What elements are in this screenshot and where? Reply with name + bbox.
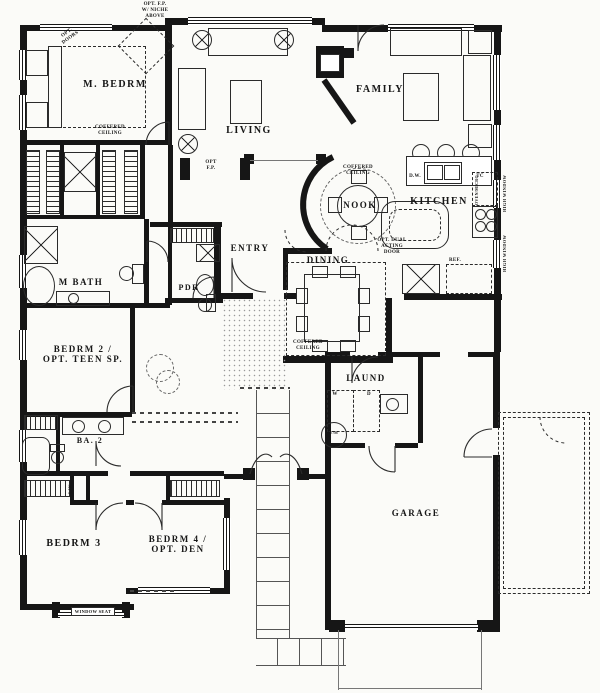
room-label-bath2: BA. 2 bbox=[70, 436, 110, 445]
wall bbox=[162, 500, 228, 505]
closet-rod bbox=[26, 150, 40, 214]
door-swing bbox=[96, 503, 123, 530]
room-label-laundry: LAUND bbox=[338, 373, 394, 383]
wall bbox=[297, 468, 309, 480]
note-coffered-dining: COFFERED CEILING bbox=[286, 340, 330, 352]
coffee-table bbox=[230, 80, 262, 124]
sink-basin bbox=[386, 398, 399, 411]
label-high-window-1: HIGH WINDOW bbox=[502, 176, 507, 212]
door-swing bbox=[369, 446, 395, 472]
wall bbox=[468, 352, 494, 357]
ceiling-fan-icon bbox=[274, 30, 294, 50]
window bbox=[493, 240, 501, 268]
closet-rod bbox=[24, 415, 58, 430]
closet-rod bbox=[102, 150, 116, 214]
closet-rod bbox=[170, 480, 220, 497]
sink-basin bbox=[98, 420, 111, 433]
wall bbox=[20, 555, 27, 610]
walkway-pavers bbox=[256, 638, 346, 666]
wall bbox=[283, 356, 393, 363]
chair bbox=[340, 266, 356, 278]
nightstand bbox=[26, 50, 48, 76]
room-label-garage: GARAGE bbox=[378, 508, 454, 518]
room-label-bedroom4: BEDRM 4 / OPT. DEN bbox=[138, 534, 218, 554]
room-label-living: LIVING bbox=[214, 125, 284, 136]
wall bbox=[494, 268, 501, 352]
courtyard-walkway bbox=[256, 390, 290, 638]
wall bbox=[150, 222, 222, 227]
closet-rod bbox=[24, 480, 70, 497]
wall bbox=[395, 443, 418, 448]
toilet-tank bbox=[132, 264, 144, 284]
floor-plan: M. BEDRM LIVING FAMILY NOOK KITCHEN ENTR… bbox=[0, 0, 600, 693]
window bbox=[345, 624, 478, 630]
wall bbox=[243, 468, 255, 480]
bath2-tub bbox=[22, 437, 50, 475]
burner bbox=[486, 221, 497, 232]
window bbox=[188, 17, 312, 25]
room-label-bedroom2: BEDRM 2 / OPT. TEEN SP. bbox=[35, 344, 131, 364]
wall bbox=[20, 80, 27, 95]
closet-shelf bbox=[196, 244, 220, 262]
wall bbox=[306, 474, 326, 479]
label-window-seat: WINDOW SEAT bbox=[71, 607, 115, 616]
wall bbox=[214, 222, 221, 302]
wall bbox=[318, 248, 332, 254]
driveway-edge bbox=[338, 688, 482, 689]
yard-fence-dashed bbox=[132, 412, 238, 414]
label-refrigerator: REF. bbox=[446, 258, 464, 264]
room-label-dining: DINING bbox=[300, 255, 356, 265]
ceiling-fan-icon bbox=[178, 134, 198, 154]
burner bbox=[486, 209, 497, 220]
wall bbox=[329, 620, 345, 632]
wall bbox=[378, 352, 440, 357]
entry-porch bbox=[222, 298, 286, 390]
wall bbox=[130, 471, 224, 476]
note-opt-fireplace-niche: OPT. F.P. W/ NICHE ABOVE bbox=[137, 2, 173, 19]
sofa bbox=[463, 55, 491, 121]
burner bbox=[475, 221, 486, 232]
closet-rod bbox=[46, 150, 60, 214]
loveseat bbox=[178, 68, 206, 130]
wall bbox=[418, 357, 423, 443]
room-label-powder: PDR bbox=[172, 283, 206, 292]
wall bbox=[477, 620, 493, 632]
room-label-bedroom3: BEDRM 3 bbox=[36, 538, 112, 549]
label-oven-micro: OVEN/MICRO bbox=[475, 175, 480, 205]
door-swing bbox=[147, 241, 168, 262]
label-dishwasher: D.W. bbox=[407, 174, 423, 180]
window bbox=[19, 330, 27, 360]
note-coffered-nook: COFFERED CEILING bbox=[336, 165, 380, 177]
closet-rod bbox=[124, 150, 138, 214]
room-label-family: FAMILY bbox=[348, 84, 412, 95]
sink-basin bbox=[72, 420, 85, 433]
pantry-cabinet bbox=[402, 264, 440, 294]
room-label-master-bedroom: M. BEDRM bbox=[70, 79, 160, 90]
window bbox=[493, 55, 501, 110]
end-table bbox=[468, 30, 492, 54]
bed-headboard bbox=[48, 46, 62, 128]
room-label-entry: ENTRY bbox=[226, 243, 274, 253]
patio-edge-dashed bbox=[240, 387, 290, 389]
wall bbox=[316, 154, 326, 164]
label-dryer: D bbox=[364, 392, 374, 398]
window bbox=[493, 125, 501, 160]
cased-opening bbox=[250, 160, 318, 161]
opt-storage-inner bbox=[503, 417, 585, 589]
door-swing bbox=[135, 503, 162, 530]
entry-closet-rod bbox=[170, 228, 214, 243]
refrigerator-box bbox=[446, 264, 492, 294]
wall bbox=[140, 145, 145, 219]
chair bbox=[358, 316, 370, 332]
wall bbox=[342, 48, 354, 58]
room-label-nook: NOOK bbox=[334, 200, 386, 210]
wall bbox=[180, 158, 190, 180]
wall bbox=[494, 25, 501, 55]
wall bbox=[494, 110, 501, 125]
label-linen: LIN bbox=[69, 477, 75, 501]
chair bbox=[296, 288, 308, 304]
burner bbox=[475, 209, 486, 220]
chair bbox=[351, 226, 367, 240]
note-opt-dual-acting-door: OPT. DUAL ACTING DOOR bbox=[372, 238, 412, 255]
window bbox=[19, 520, 27, 555]
shower bbox=[24, 226, 58, 264]
sofa bbox=[390, 28, 462, 56]
sink-basin bbox=[427, 165, 443, 180]
chair bbox=[340, 340, 356, 352]
chair bbox=[312, 266, 328, 278]
yard-fence-dashed bbox=[132, 421, 238, 423]
wall bbox=[86, 475, 90, 502]
window bbox=[223, 518, 231, 570]
firebox bbox=[320, 54, 340, 72]
wall bbox=[126, 500, 134, 505]
ceiling-fan-icon bbox=[192, 30, 212, 50]
bath-vanity bbox=[56, 291, 110, 306]
chair bbox=[296, 316, 308, 332]
toilet-tank bbox=[206, 294, 216, 312]
nightstand bbox=[26, 102, 48, 128]
driveway-edge bbox=[481, 630, 482, 690]
table bbox=[403, 73, 439, 121]
driveway-edge bbox=[338, 630, 339, 690]
door-swing bbox=[464, 429, 492, 457]
note-coffered-master: COFFERED CEILING bbox=[82, 125, 138, 137]
label-water-heater: W/H bbox=[322, 430, 344, 435]
label-high-window-2: HIGH WINDOW bbox=[502, 236, 507, 272]
chair bbox=[358, 288, 370, 304]
sink-basin bbox=[68, 293, 79, 304]
wall bbox=[96, 145, 100, 217]
plant bbox=[156, 370, 180, 394]
wall bbox=[168, 243, 172, 305]
wall bbox=[240, 158, 250, 180]
opt-den-dashed bbox=[130, 590, 174, 592]
wall bbox=[325, 443, 331, 630]
dining-table bbox=[304, 274, 360, 342]
wall bbox=[404, 294, 502, 300]
dressing-area bbox=[64, 152, 96, 192]
label-washer: W bbox=[330, 392, 340, 398]
sink-basin bbox=[444, 165, 460, 180]
wall bbox=[224, 570, 230, 594]
room-label-master-bath: M BATH bbox=[50, 277, 112, 287]
front-door-swing bbox=[232, 258, 266, 292]
note-opt-fireplace-living: OPT F.P. bbox=[200, 160, 222, 172]
wall bbox=[144, 219, 149, 307]
room-label-kitchen: KITCHEN bbox=[404, 196, 474, 207]
island-counter bbox=[389, 209, 441, 241]
wall bbox=[20, 215, 144, 219]
toilet bbox=[51, 451, 64, 464]
wall bbox=[20, 25, 27, 50]
